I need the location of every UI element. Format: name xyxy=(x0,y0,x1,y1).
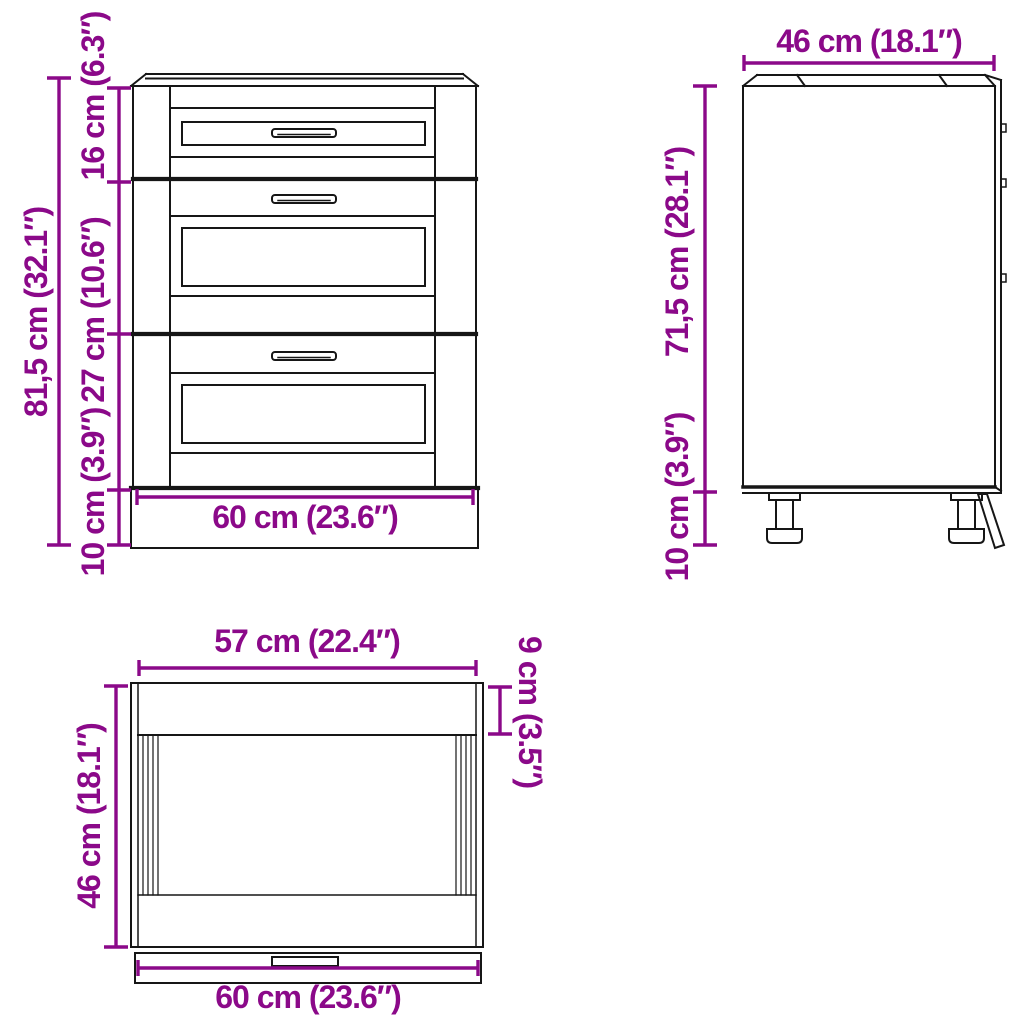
cabinet-technical-drawing: 81,5 cm (32.1″) 16 cm (6.3″) 27 cm (10.6… xyxy=(0,0,1024,1024)
foot-base xyxy=(949,529,984,543)
dim-front-rail-depth-line xyxy=(488,687,512,734)
dim-side-heights-line xyxy=(693,86,717,545)
drawer-1 xyxy=(170,108,435,157)
side-panel-layer-lines xyxy=(143,735,471,895)
drawer-3 xyxy=(170,352,435,453)
plinth-clip-bracket xyxy=(978,494,1004,548)
adjustable-foot-left xyxy=(767,493,802,543)
front-handle xyxy=(272,957,338,966)
top-width-label: 60 cm (23.6″) xyxy=(215,979,401,1015)
front-total-height-label: 81,5 cm (32.1″) xyxy=(18,207,54,418)
drawer-2 xyxy=(170,195,435,296)
foot-stem xyxy=(776,500,793,529)
front-width-label: 60 cm (23.6″) xyxy=(212,499,398,535)
fitting-mark xyxy=(1001,124,1006,132)
cabinet-top-outline xyxy=(131,683,483,947)
front-middle-drawer-label: 27 cm (10.6″) xyxy=(75,217,111,403)
top-inner-width-label: 57 cm (22.4″) xyxy=(214,623,400,659)
drawer-3-panel xyxy=(182,385,425,443)
side-depth-label: 46 cm (18.1″) xyxy=(776,23,962,59)
top-front-rail-depth-label: 9 cm (3.5″) xyxy=(512,636,548,788)
fitting-mark xyxy=(1001,274,1006,282)
side-feet-height-label: 10 cm (3.9″) xyxy=(659,412,695,581)
top-depth-label: 46 cm (18.1″) xyxy=(71,723,107,909)
dim-inner-width-line xyxy=(139,660,476,676)
adjustable-foot-right xyxy=(949,493,1004,548)
top-view: 57 cm (22.4″) 9 cm (3.5″) 46 cm (18.1″) … xyxy=(71,623,548,1015)
front-dimensions: 81,5 cm (32.1″) 16 cm (6.3″) 27 cm (10.6… xyxy=(18,11,473,576)
side-dimensions: 46 cm (18.1″) 71,5 cm (28.1″) 10 cm (3.9… xyxy=(659,23,994,581)
foot-stem xyxy=(958,500,975,529)
drawer-2-handle xyxy=(272,195,336,203)
front-plinth-height-label: 10 cm (3.9″) xyxy=(75,407,111,576)
drawing-svg: 81,5 cm (32.1″) 16 cm (6.3″) 27 cm (10.6… xyxy=(0,0,1024,1024)
drawer-3-handle xyxy=(272,352,336,360)
drawer-1-handle xyxy=(272,129,336,137)
cabinet-side-panel xyxy=(743,86,995,487)
side-wall-inner-edges xyxy=(138,683,476,947)
side-view: 46 cm (18.1″) 71,5 cm (28.1″) 10 cm (3.9… xyxy=(659,23,1006,581)
dim-top-depth-line xyxy=(104,686,128,947)
drawer-2-panel xyxy=(182,228,425,286)
front-top-drawer-label: 16 cm (6.3″) xyxy=(75,11,111,180)
front-view: 81,5 cm (32.1″) 16 cm (6.3″) 27 cm (10.6… xyxy=(18,11,478,576)
foot-base xyxy=(767,529,802,543)
side-top-edge xyxy=(743,75,1001,86)
page: { "colors": { "dimension": "#8B0989", "l… xyxy=(0,0,1024,1024)
fitting-mark xyxy=(1001,179,1006,187)
top-panel xyxy=(131,74,478,86)
side-body-height-label: 71,5 cm (28.1″) xyxy=(659,147,695,358)
foot-plate xyxy=(769,493,800,500)
